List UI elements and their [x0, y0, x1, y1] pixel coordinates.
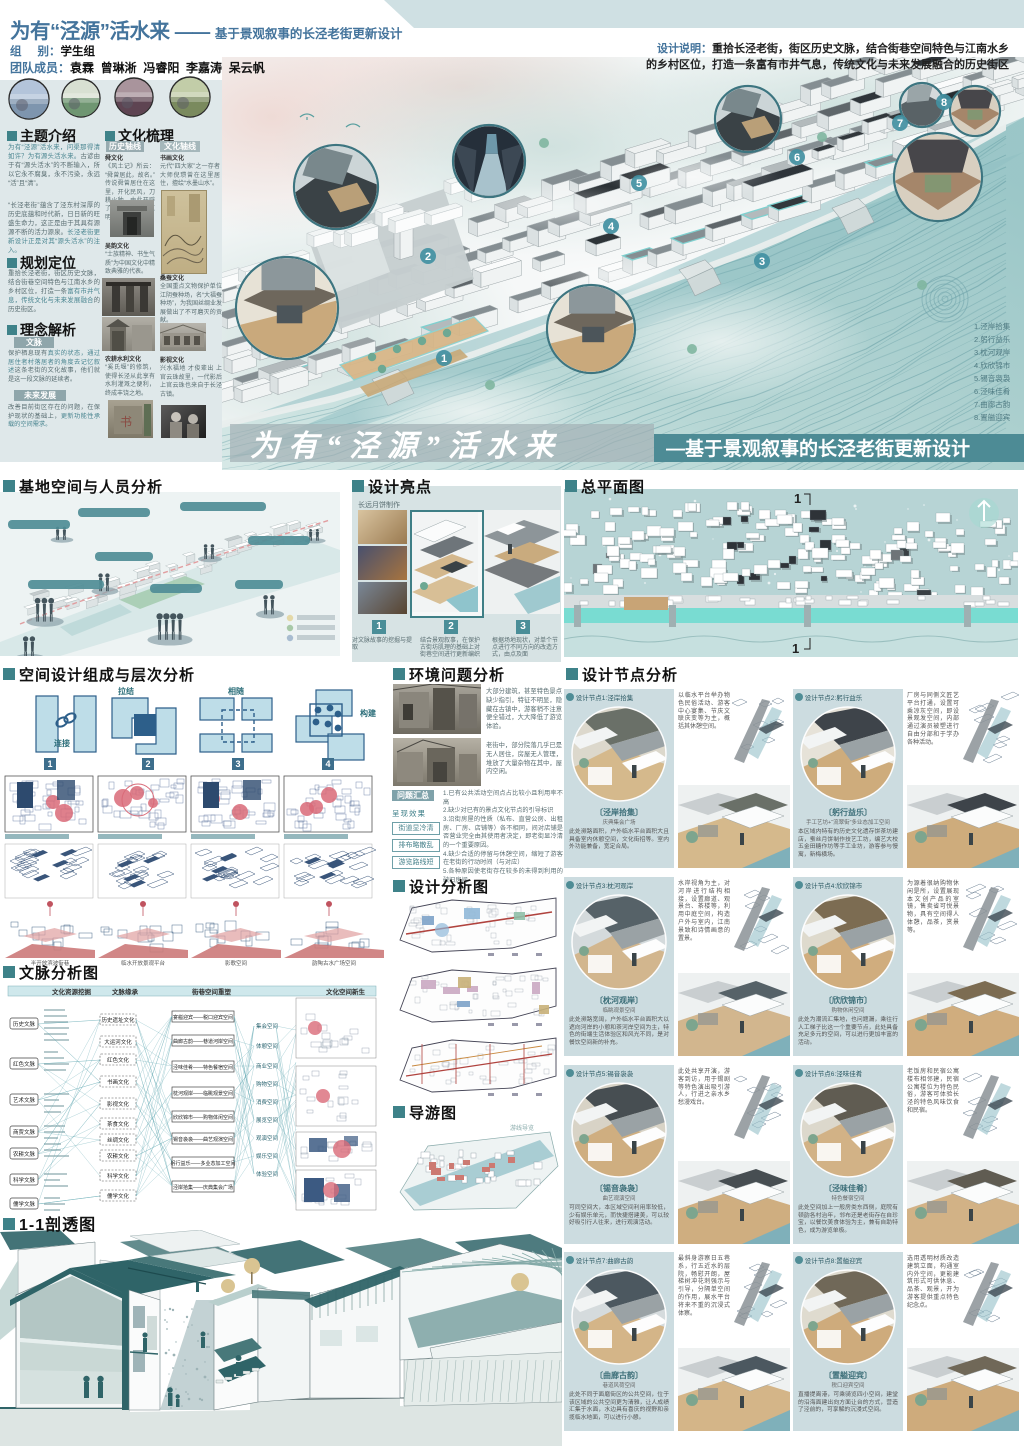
svg-text:8.置艗迎宾: 8.置艗迎宾	[974, 412, 1011, 422]
svg-text:泾岸拾集——庆典集会广场: 泾岸拾集——庆典集会广场	[173, 1184, 233, 1191]
svg-text:红色文化: 红色文化	[107, 1056, 130, 1064]
svg-text:历史遗址文化: 历史遗址文化	[101, 1016, 135, 1024]
svg-text:2: 2	[145, 759, 150, 769]
svg-text:文脉缘承: 文脉缘承	[111, 987, 139, 996]
svg-text:艺术文脉: 艺术文脉	[13, 1096, 36, 1104]
svg-text:4: 4	[325, 759, 330, 769]
svg-text:泾味佳肴——特色餐宿空间: 泾味佳肴——特色餐宿空间	[173, 1064, 233, 1071]
svg-text:1.泾岸拾集: 1.泾岸拾集	[974, 321, 1011, 331]
svg-text:构建: 构建	[360, 708, 377, 718]
svg-text:1: 1	[794, 491, 801, 506]
svg-text:8: 8	[941, 97, 947, 109]
svg-text:儒学文化: 儒学文化	[107, 1192, 130, 1200]
svg-text:商业空间: 商业空间	[256, 1062, 278, 1070]
svg-text:书画文化: 书画文化	[107, 1078, 130, 1086]
svg-text:集会空间: 集会空间	[256, 1022, 278, 1030]
svg-text:韵陶古水广场空间: 韵陶古水广场空间	[312, 959, 356, 966]
svg-text:7: 7	[897, 118, 903, 130]
svg-text:曲廊古韵——巷道河岸空间: 曲廊古韵——巷道河岸空间	[173, 1038, 233, 1045]
svg-text:商贾文脉: 商贾文脉	[13, 1128, 36, 1136]
svg-text:临水开放景观平台: 临水开放景观平台	[121, 959, 166, 966]
svg-text:红色文脉: 红色文脉	[13, 1060, 36, 1068]
svg-text:历史文脉: 历史文脉	[13, 1020, 36, 1028]
svg-text:文化资源挖掘: 文化资源挖掘	[51, 987, 92, 996]
svg-text:2: 2	[425, 251, 431, 263]
svg-text:—基于景观叙事的长泾老街更新设计: —基于景观叙事的长泾老街更新设计	[666, 437, 970, 460]
svg-text:影歌空间: 影歌空间	[225, 959, 247, 966]
svg-text:锡音袅袅——曲艺观演空间: 锡音袅袅——曲艺观演空间	[173, 1136, 233, 1143]
svg-text:大运河文化: 大运河文化	[104, 1038, 132, 1046]
svg-text:欣欣锦市——购物体闲空间: 欣欣锦市——购物体闲空间	[173, 1114, 233, 1121]
svg-text:5.锡音袅袅: 5.锡音袅袅	[974, 373, 1011, 383]
svg-text:连接: 连接	[54, 738, 70, 748]
svg-text:5: 5	[636, 178, 642, 190]
svg-text:展览空间: 展览空间	[256, 1116, 278, 1124]
svg-text:文化空间新生: 文化空间新生	[325, 987, 366, 996]
svg-text:游线导览: 游线导览	[510, 1124, 534, 1132]
svg-text:街巷空间重塑: 街巷空间重塑	[191, 987, 232, 996]
svg-text:拉结: 拉结	[118, 686, 134, 696]
svg-text:科学文脉: 科学文脉	[13, 1176, 36, 1184]
svg-text:儒学文脉: 儒学文脉	[13, 1200, 36, 1208]
svg-text:1: 1	[441, 353, 447, 365]
svg-text:宴艗迎宾——税口迎宾空间: 宴艗迎宾——税口迎宾空间	[173, 1014, 233, 1021]
svg-text:科学文化: 科学文化	[107, 1172, 130, 1180]
svg-text:农耕文化: 农耕文化	[107, 1152, 130, 1160]
svg-text:茶食文化: 茶食文化	[107, 1120, 130, 1128]
svg-text:相随: 相随	[228, 686, 244, 696]
svg-text:3: 3	[235, 759, 240, 769]
svg-text:为有“泾源”活水来: 为有“泾源”活水来	[250, 430, 562, 463]
svg-text:6.泾味佳肴: 6.泾味佳肴	[974, 386, 1011, 396]
svg-text:1: 1	[47, 759, 52, 769]
svg-text:体验空间: 体验空间	[256, 1170, 278, 1178]
svg-text:书: 书	[120, 415, 132, 429]
svg-text:丝绸文化: 丝绸文化	[107, 1136, 130, 1144]
svg-text:枕河观岸——临眺观景空间: 枕河观岸——临眺观景空间	[173, 1090, 233, 1097]
svg-text:体憩空间: 体憩空间	[256, 1042, 278, 1050]
svg-text:购物空间: 购物空间	[256, 1080, 278, 1088]
svg-text:影视文化: 影视文化	[107, 1100, 130, 1108]
svg-text:农耕文脉: 农耕文脉	[13, 1150, 36, 1158]
svg-text:3: 3	[759, 256, 765, 268]
svg-text:观演空间: 观演空间	[256, 1134, 278, 1142]
svg-text:3.枕河观岸: 3.枕河观岸	[974, 347, 1011, 357]
svg-text:7.曲廊古韵: 7.曲廊古韵	[974, 399, 1010, 409]
svg-text:消费空间: 消费空间	[256, 1098, 278, 1106]
svg-text:2.躬行益乐: 2.躬行益乐	[974, 334, 1011, 344]
svg-text:4.欣欣锦市: 4.欣欣锦市	[974, 360, 1011, 370]
svg-text:6: 6	[794, 152, 800, 164]
svg-text:娱乐空间: 娱乐空间	[256, 1152, 278, 1160]
svg-text:4: 4	[608, 221, 615, 233]
svg-text:躬行益乐——多业态加工空间: 躬行益乐——多业态加工空间	[170, 1160, 235, 1167]
svg-text:1: 1	[792, 641, 799, 656]
